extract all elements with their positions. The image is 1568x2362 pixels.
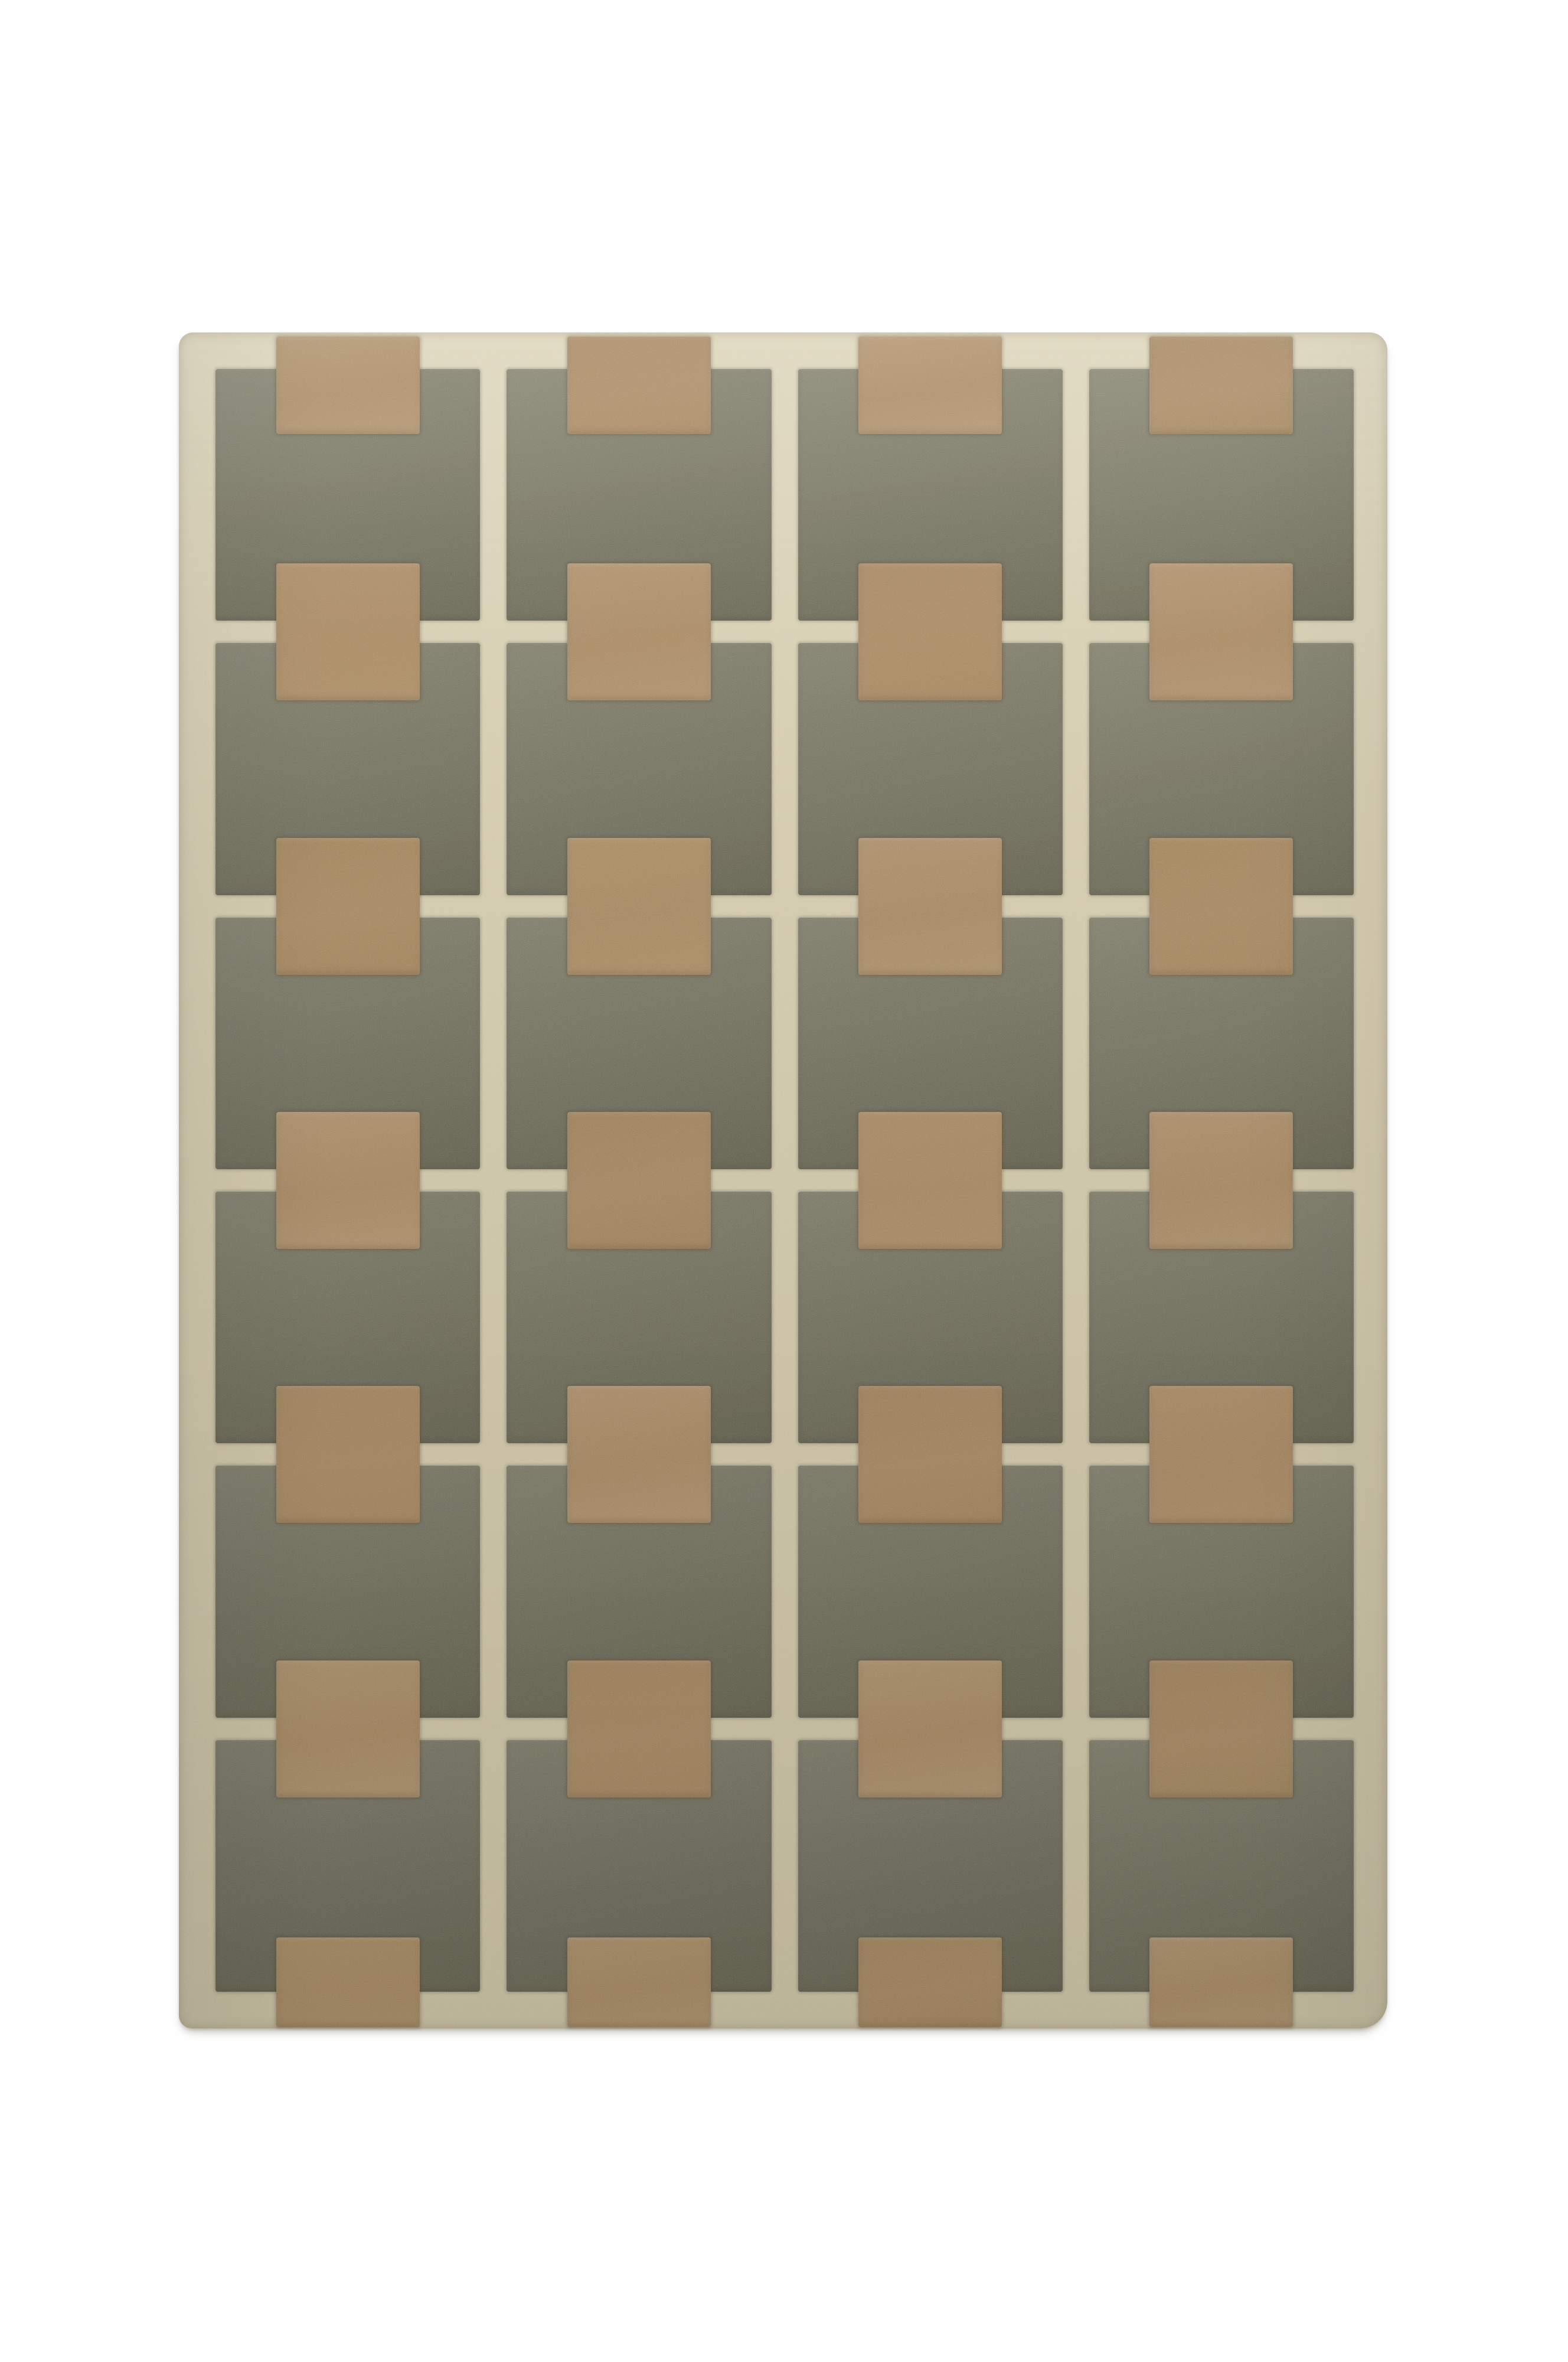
rug-accent-square [567,1937,711,2027]
rug-accent-square [1149,1660,1293,1797]
rug-accent-square [276,563,420,700]
rug-accent-square [858,337,1002,434]
rug-accent-square [1149,838,1293,975]
rug-accent-square [276,337,420,434]
rug-accent-square [858,1937,1002,2027]
rug-accent-square [1149,1112,1293,1249]
rug-accent-square [567,563,711,700]
rug-accent-square [858,563,1002,700]
rug-accent-square [858,838,1002,975]
rug-accent-square [276,1386,420,1523]
rug-accent-square [1149,337,1293,434]
rug [179,332,1387,2028]
rug-accent-square [567,1386,711,1523]
rug-accent-square [567,838,711,975]
rug-accent-square [567,1112,711,1249]
rug-accent-square [567,337,711,434]
rug-accent-square [567,1660,711,1797]
rug-accent-square [276,1660,420,1797]
rug-accent-square [858,1660,1002,1797]
photo-background [0,0,1568,2362]
rug-accent-square [858,1112,1002,1249]
rug-accent-square [276,1937,420,2027]
rug-accent-square [1149,563,1293,700]
rug-accent-square [276,838,420,975]
rug-accent-square [858,1386,1002,1523]
rug-accent-square [1149,1386,1293,1523]
rug-accent-square [276,1112,420,1249]
rug-accent-square [1149,1937,1293,2027]
